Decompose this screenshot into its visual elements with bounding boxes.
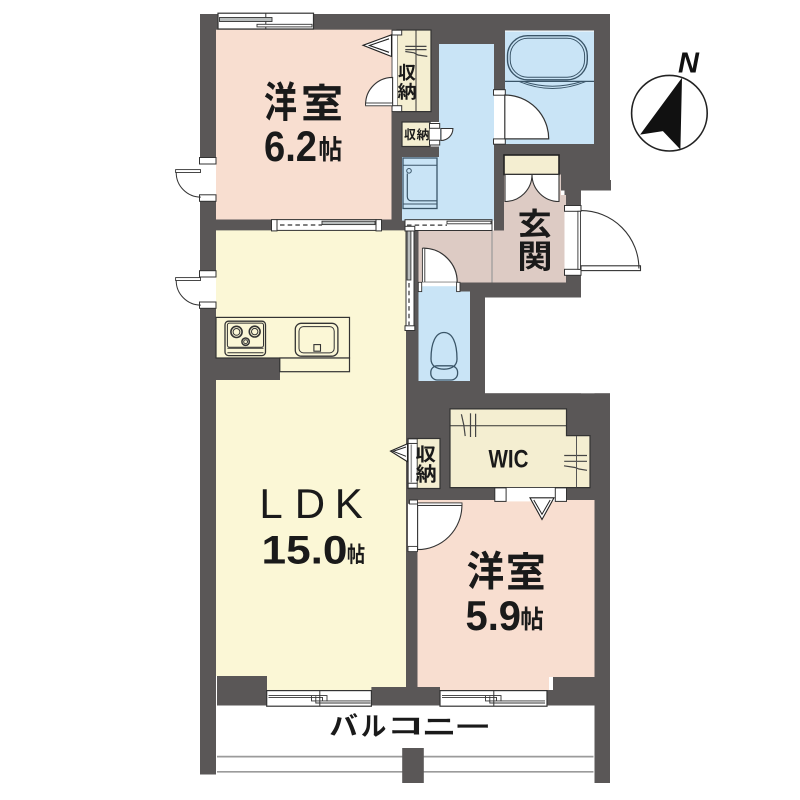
svg-text:K: K xyxy=(335,480,363,527)
svg-text:5.9: 5.9 xyxy=(466,592,522,639)
svg-text:6.2: 6.2 xyxy=(264,123,317,171)
svg-text:WIC: WIC xyxy=(489,446,529,474)
svg-text:N: N xyxy=(678,48,700,80)
svg-text:15.0: 15.0 xyxy=(262,529,348,573)
svg-text:L: L xyxy=(259,480,282,527)
svg-text:D: D xyxy=(295,480,325,527)
